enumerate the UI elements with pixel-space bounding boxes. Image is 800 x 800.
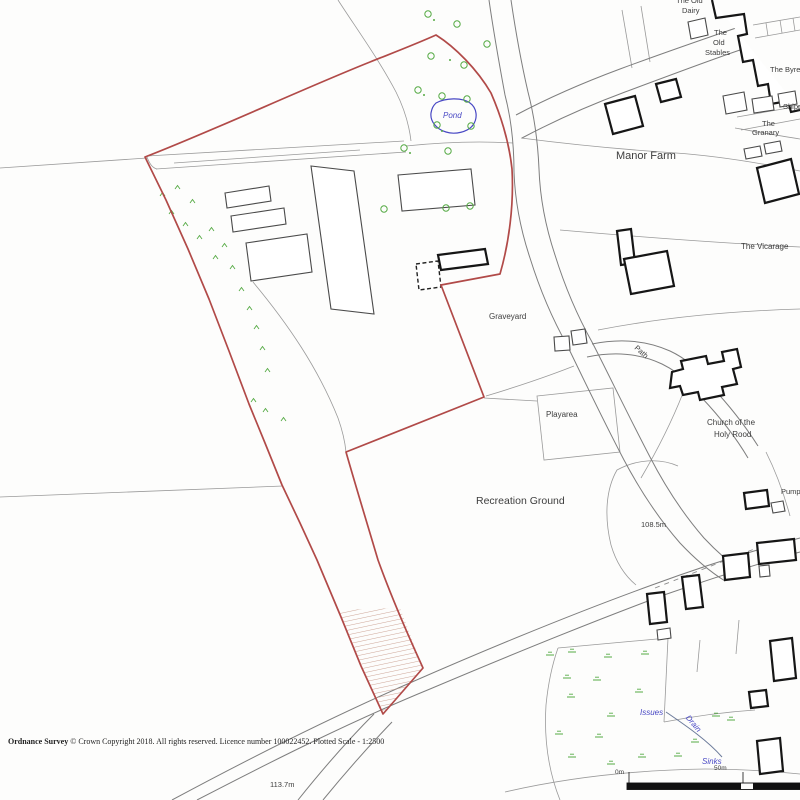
scalebar-end-label: 50m <box>714 766 727 773</box>
barn-row-1 <box>225 186 271 208</box>
label-old-stables-line2: Old <box>713 39 725 47</box>
dashed-outbuilding <box>416 261 441 290</box>
granary-building-2 <box>752 96 774 113</box>
hatched-area <box>338 608 423 714</box>
site-boundary <box>145 35 512 714</box>
farm-building-east <box>438 249 488 270</box>
attribution-line: Ordnance Survey © Crown Copyright 2018. … <box>8 737 384 746</box>
scalebar-start-label: 0m <box>615 770 624 777</box>
manor-farm-outbuilding <box>656 79 681 102</box>
manor-farm-house <box>605 96 643 134</box>
junction-hut-2 <box>571 329 587 345</box>
attribution-publisher: Ordnance Survey <box>8 737 68 746</box>
pump-house <box>744 490 769 509</box>
label-the-old-dairy-line1: The Old <box>676 0 703 5</box>
label-shippon: Shippon <box>783 103 800 111</box>
label-recreation-ground: Recreation Ground <box>476 496 565 507</box>
map-canvas: The Old Dairy The Old Stables The Byre S… <box>0 0 800 800</box>
label-the-vicarage: The Vicarage <box>741 243 788 251</box>
roadside-house-2 <box>723 553 750 580</box>
label-pond: Pond <box>443 112 462 120</box>
house-near-granary <box>757 159 799 203</box>
cottage-shed-2 <box>759 565 770 577</box>
label-playarea: Playarea <box>546 411 578 419</box>
cottage-shed-1 <box>771 501 785 513</box>
marsh-symbols <box>546 649 735 764</box>
junction-hut-1 <box>554 336 570 351</box>
buildings <box>225 0 800 774</box>
cottage-shed-3 <box>657 628 671 640</box>
attribution-text: © Crown Copyright 2018. All rights reser… <box>68 737 384 746</box>
label-issues: Issues <box>640 709 663 717</box>
long-barn <box>311 166 374 314</box>
label-graveyard: Graveyard <box>489 313 526 321</box>
road-network <box>172 0 800 800</box>
label-pump: Pump <box>781 488 800 496</box>
dairy-outbuilding <box>688 18 708 39</box>
farm-shed <box>398 169 475 211</box>
label-church-line1: Church of the <box>707 419 755 427</box>
roadside-house-7 <box>757 738 783 774</box>
barn-row-3 <box>246 234 312 281</box>
label-granary-line1: The <box>762 120 775 128</box>
vicarage-house <box>624 251 674 294</box>
spot-height-108: 108.5m <box>641 521 666 529</box>
roadside-house-1 <box>757 539 796 564</box>
granary-building-1 <box>723 92 747 114</box>
roadside-house-3 <box>682 575 703 609</box>
spot-height-113: 113.7m <box>270 781 294 789</box>
roadside-house-4 <box>647 592 667 624</box>
label-old-stables-line3: Stables <box>705 49 730 57</box>
label-church-line2: Holy Rood <box>714 431 751 439</box>
scale-bar <box>627 772 800 790</box>
label-the-byre: The Byre <box>770 66 800 74</box>
label-the-old-dairy-line2: Dairy <box>682 7 700 15</box>
roadside-house-6 <box>749 690 768 708</box>
label-old-stables-line1: The <box>714 29 727 37</box>
label-granary-line2: Granary <box>752 129 779 137</box>
small-outbuilding-1 <box>744 146 762 159</box>
small-outbuilding-2 <box>764 141 782 154</box>
map-linework <box>0 0 800 800</box>
label-manor-farm: Manor Farm <box>616 151 676 163</box>
barn-row-2 <box>231 208 286 232</box>
roadside-house-5 <box>770 638 796 681</box>
